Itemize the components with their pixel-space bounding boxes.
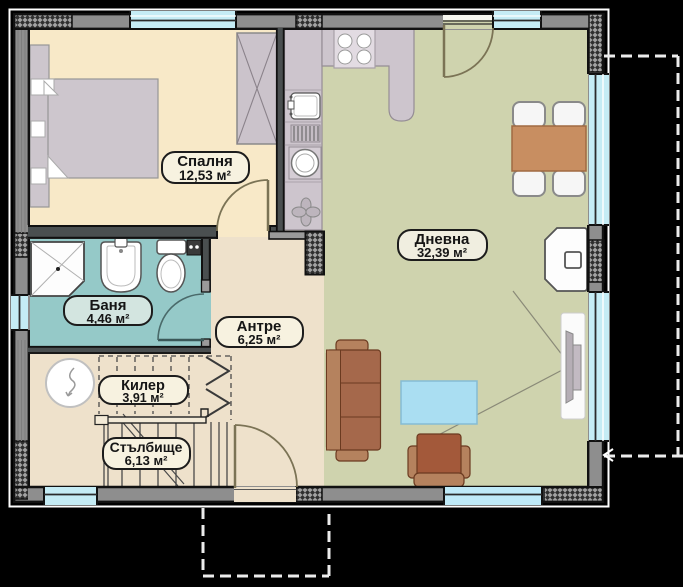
svg-text:6,13 м²: 6,13 м² <box>125 453 169 468</box>
svg-text:6,25 м²: 6,25 м² <box>238 332 282 347</box>
svg-text:4,46 м²: 4,46 м² <box>87 311 131 326</box>
svg-text:3,91 м²: 3,91 м² <box>122 391 163 405</box>
svg-text:32,39 м²: 32,39 м² <box>417 245 468 260</box>
svg-text:12,53 м²: 12,53 м² <box>179 168 232 183</box>
